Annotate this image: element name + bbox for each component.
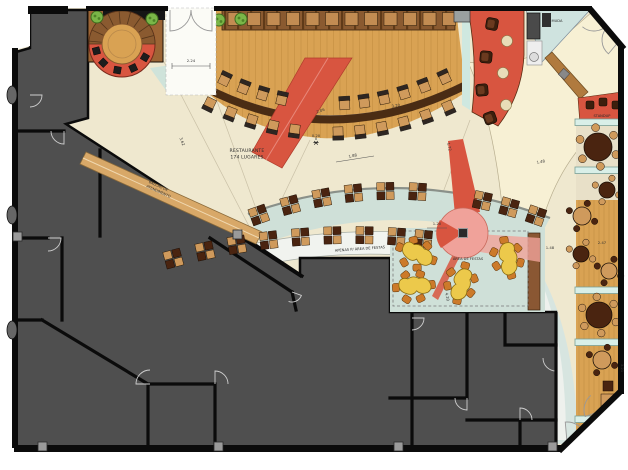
- cluster-chair: [333, 236, 341, 244]
- bench-cushion: [365, 13, 378, 26]
- chair-seat: [339, 100, 350, 110]
- cluster-chair: [386, 182, 394, 190]
- round-table: [599, 182, 615, 198]
- cluster-chair: [204, 241, 214, 251]
- round-chair: [599, 198, 605, 204]
- round-chair: [566, 207, 572, 213]
- column: [233, 230, 242, 239]
- plant: [235, 13, 247, 25]
- standup-label: STANDUP: [594, 114, 612, 118]
- party-chair: [443, 281, 451, 290]
- cluster-chair: [386, 191, 394, 199]
- floor-plan-svg: RESTAURANTE 174 LUGARES BALCÃO DE ATENDI…: [0, 0, 628, 470]
- round-table: [573, 207, 591, 225]
- bench-cushion: [345, 13, 358, 26]
- bar-chair: [288, 124, 301, 139]
- panel-stripe: [302, 10, 304, 30]
- round-chair: [593, 369, 599, 375]
- cluster-chair: [269, 240, 278, 249]
- column: [548, 442, 557, 451]
- cluster-chair: [424, 230, 433, 239]
- armchair-cushion: [481, 53, 489, 62]
- booth-chair: [603, 381, 613, 391]
- cluster-chair: [259, 232, 268, 241]
- wall-pilaster: [7, 86, 17, 104]
- dim-2-47: 2.47: [598, 240, 607, 245]
- cluster-chair: [418, 192, 426, 200]
- restaurant-label-line2: 174 LUGARES: [230, 155, 263, 161]
- round-chair: [610, 300, 618, 308]
- cluster-chair: [354, 193, 363, 202]
- round-chair: [584, 200, 590, 206]
- booth-divider: [575, 287, 623, 294]
- panel-stripe: [380, 10, 382, 30]
- cluster-chair: [292, 238, 301, 247]
- party-area-label: ÁREA DE FESTAS: [453, 256, 484, 261]
- round-chair: [597, 329, 605, 337]
- cluster-chair: [165, 259, 175, 269]
- service-label: MUDA: [552, 19, 563, 23]
- cluster-chair: [282, 206, 292, 216]
- cluster-chair: [409, 183, 417, 191]
- cluster-chair: [195, 243, 205, 253]
- bar-chair: [339, 96, 351, 110]
- cluster-chair: [388, 227, 397, 236]
- top-wall-b: [86, 6, 168, 11]
- column: [214, 442, 223, 451]
- cluster-chair: [344, 185, 353, 194]
- round-table: [593, 351, 611, 369]
- standup-chair: [586, 101, 594, 109]
- structural-column: [459, 229, 468, 238]
- wall-pilaster: [7, 206, 17, 224]
- plant: [91, 11, 103, 23]
- round-chair: [578, 155, 586, 163]
- bar-stool: [113, 66, 121, 74]
- service-equipment: [527, 13, 540, 39]
- cluster-chair: [260, 241, 269, 250]
- cluster-chair: [365, 236, 373, 244]
- bench-cushion: [423, 13, 436, 26]
- top-wall-c: [214, 6, 592, 11]
- cluster-chair: [174, 257, 184, 267]
- round-chair: [594, 263, 600, 269]
- plant-leaf: [220, 20, 223, 23]
- plant-leaf: [98, 17, 101, 20]
- dim-3-21: 3.21: [620, 364, 625, 373]
- round-table: [573, 246, 589, 262]
- chair-seat: [378, 94, 390, 105]
- bench-cushion: [287, 13, 300, 26]
- chair-seat: [268, 120, 280, 131]
- round-chair: [596, 162, 604, 170]
- round-chair: [593, 293, 601, 301]
- cluster-chair: [483, 192, 493, 202]
- cluster-chair: [268, 231, 277, 240]
- round-table: [601, 263, 617, 279]
- bench-cushion: [248, 13, 261, 26]
- cluster-chair: [300, 228, 309, 237]
- round-chair: [610, 131, 618, 139]
- cluster-chair: [356, 226, 364, 234]
- cluster-chair: [345, 194, 354, 203]
- dim-1-20: 1.20: [433, 221, 442, 226]
- round-chair: [581, 322, 589, 330]
- round-chair: [583, 239, 589, 245]
- bar-chair: [358, 94, 371, 109]
- chair-seat: [333, 127, 343, 136]
- bench-cushion: [306, 13, 319, 26]
- restaurant-label-line1: RESTAURANTE: [230, 148, 265, 154]
- lounge-armchair: [479, 50, 492, 63]
- round-table: [586, 302, 612, 328]
- chair-seat: [289, 124, 300, 134]
- plant-leaf: [149, 17, 152, 20]
- cluster-chair: [324, 227, 332, 235]
- cluster-chair: [313, 198, 322, 207]
- dim-2-24: 2.24: [187, 58, 196, 63]
- chair-seat: [359, 98, 370, 108]
- plant-leaf: [153, 19, 156, 22]
- booth-divider: [575, 119, 623, 126]
- lounge-teal-sliver: [462, 12, 470, 110]
- bench-cushion: [267, 13, 280, 26]
- column: [38, 442, 47, 451]
- bar-chair: [332, 127, 343, 141]
- cluster-chair: [289, 195, 299, 205]
- cluster-chair: [312, 189, 321, 198]
- service-machine: [542, 13, 551, 27]
- cluster-chair: [365, 227, 373, 235]
- left-wall: [12, 48, 18, 448]
- cluster-chair: [237, 244, 246, 253]
- round-chair: [586, 351, 592, 357]
- round-chair: [589, 256, 595, 262]
- chair-seat: [276, 95, 288, 106]
- cluster-chair: [377, 182, 385, 190]
- round-table: [584, 133, 612, 161]
- round-chair: [611, 256, 617, 262]
- bench-cushion: [384, 13, 397, 26]
- cluster-chair: [408, 192, 416, 200]
- corner-mask-tl: [14, 8, 30, 50]
- round-chair: [576, 135, 584, 143]
- bench-cushion: [443, 13, 456, 26]
- wall-pilaster: [7, 321, 17, 339]
- plant-leaf: [238, 17, 241, 20]
- panel-stripe: [419, 10, 421, 30]
- round-chair: [592, 124, 600, 132]
- cluster-chair: [418, 183, 426, 191]
- plant-leaf: [242, 19, 245, 22]
- dim-1-48-b: 1.48: [546, 245, 555, 250]
- cluster-chair: [472, 199, 482, 209]
- vestibule-floor: [166, 8, 216, 95]
- cluster-chair: [321, 188, 330, 197]
- standup-chair: [599, 98, 607, 106]
- top-wall-a: [28, 6, 68, 14]
- plant: [146, 13, 158, 25]
- dim-0-20: 0.20: [312, 133, 321, 138]
- floor-plan-canvas: RESTAURANTE 174 LUGARES BALCÃO DE ATENDI…: [0, 0, 628, 470]
- cluster-chair: [206, 250, 216, 260]
- cluster-chair: [322, 197, 331, 206]
- cluster-chair: [481, 201, 491, 211]
- cluster-chair: [291, 203, 301, 213]
- armchair-cushion: [477, 86, 485, 95]
- cluster-chair: [387, 237, 396, 246]
- lounge-side-table: [501, 100, 512, 111]
- plant-foliage: [235, 13, 247, 25]
- round-chair: [601, 279, 607, 285]
- cluster-chair: [197, 252, 207, 262]
- chair-seat: [354, 125, 365, 135]
- cluster-chair: [291, 228, 300, 237]
- round-chair: [566, 246, 572, 252]
- plant-leaf: [94, 15, 97, 18]
- cluster-chair: [324, 236, 332, 244]
- bench-cushion: [404, 13, 417, 26]
- lounge-side-table: [502, 36, 513, 47]
- cluster-chair: [163, 250, 173, 260]
- entrance-vestibule: [166, 8, 216, 95]
- cluster-chair: [397, 228, 406, 237]
- sink-basin: [530, 53, 539, 62]
- cluster-chair: [280, 197, 290, 207]
- cluster-chair: [228, 245, 237, 254]
- cluster-chair: [377, 192, 385, 200]
- lounge-armchair: [485, 17, 499, 31]
- cluster-chair: [333, 227, 341, 235]
- round-chair: [604, 344, 610, 350]
- cluster-chair: [353, 184, 362, 193]
- cluster-chair: [301, 237, 310, 246]
- right-wall: [618, 46, 624, 394]
- round-chair: [578, 304, 586, 312]
- bar-chair: [354, 125, 366, 139]
- round-chair: [573, 262, 579, 268]
- panel-stripe: [263, 10, 265, 30]
- lounge-armchair: [475, 83, 488, 96]
- round-chair: [592, 182, 598, 188]
- plant-foliage: [91, 11, 103, 23]
- bottom-wall: [14, 445, 562, 452]
- column: [394, 442, 403, 451]
- booth-divider: [575, 339, 623, 346]
- round-chair: [591, 218, 597, 224]
- bar-stool: [92, 47, 101, 56]
- cluster-chair: [356, 236, 364, 244]
- round-chair: [573, 225, 579, 231]
- panel-stripe: [341, 10, 343, 30]
- plant-foliage: [146, 13, 158, 25]
- round-chair: [609, 175, 615, 181]
- bench-cushion: [326, 13, 339, 26]
- lounge-side-table: [498, 68, 509, 79]
- cluster-chair: [172, 248, 182, 258]
- chair-seat: [376, 121, 388, 132]
- column: [13, 232, 22, 241]
- round-chair: [611, 362, 617, 368]
- cluster-chair: [474, 190, 484, 200]
